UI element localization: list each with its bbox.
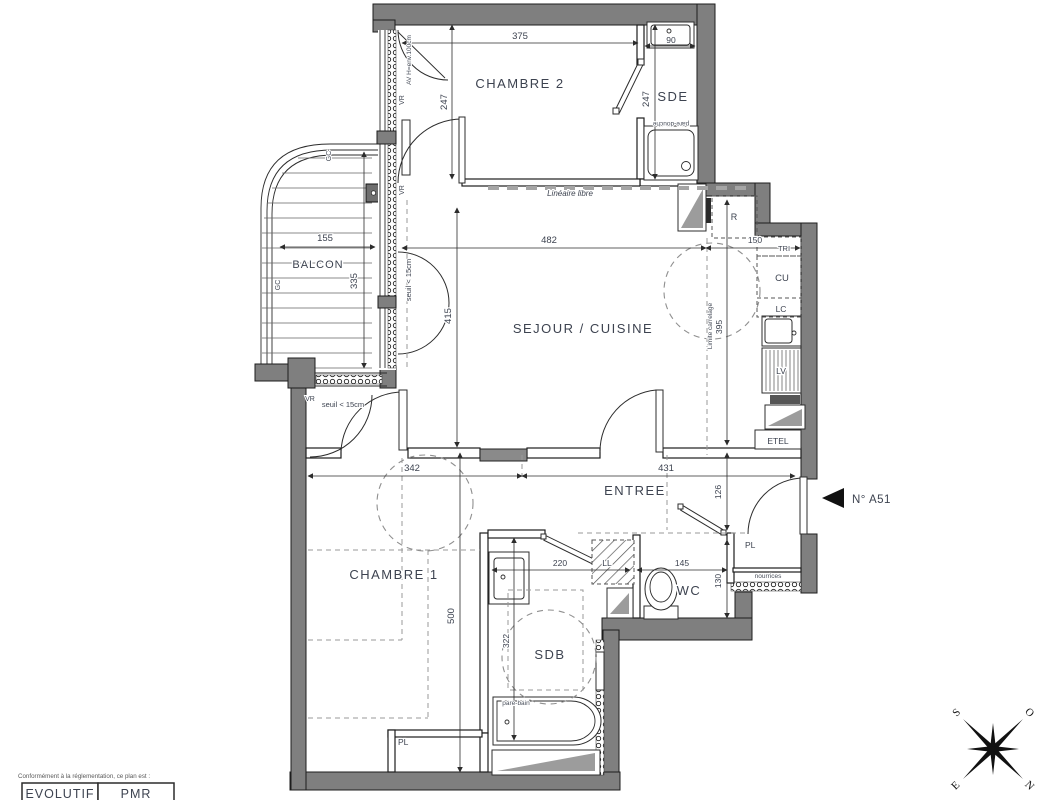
seuil-label: seuil < 15cm: [404, 259, 413, 301]
dim-wc-width: 145: [675, 558, 689, 568]
dim-chambre2-width: 375: [512, 31, 528, 42]
radiator: [480, 449, 527, 461]
wall-wc-south: [602, 618, 752, 640]
dim-wc-depth: 130: [713, 574, 723, 588]
washing-machine: [592, 540, 634, 584]
room-label-entree: ENTREE: [604, 483, 666, 498]
dim-chambre2-depth: 247: [439, 94, 450, 110]
fridge-label: R: [731, 212, 738, 222]
shutter-coil: [316, 375, 382, 384]
dim-chambre1-depth: 500: [446, 608, 457, 624]
room-label-balcon: BALCON: [292, 259, 343, 271]
tri-label: TRI: [778, 244, 790, 253]
page-background: [0, 0, 1053, 800]
worktop: [770, 395, 800, 404]
gc-label: GC: [326, 151, 333, 162]
towel-radiator: [596, 652, 604, 690]
door-leaf: [459, 117, 465, 183]
dim-cuisine-width: 150: [748, 235, 762, 245]
etel-label: ETEL: [767, 436, 789, 446]
dim-sdb-width: 220: [553, 558, 567, 568]
room-label-chambre1: CHAMBRE 1: [349, 567, 438, 582]
dim-sejour-width: 482: [541, 235, 557, 246]
pl-label: PL: [745, 540, 756, 550]
gc-label: GC: [275, 280, 282, 291]
wall-west: [291, 386, 306, 790]
room-label-sdb: SDB: [534, 647, 565, 662]
door-leaf: [656, 390, 663, 452]
dim-sejour-depth: 415: [443, 308, 454, 324]
limite-carrelage-label: Limite carrelage: [707, 302, 714, 349]
room-label-wc: WC: [677, 583, 702, 598]
dim-balcon-width: 155: [317, 233, 333, 244]
footer-note: Conformément à la réglementation, ce pla…: [18, 773, 150, 780]
dim-entree-depth: 126: [713, 485, 723, 499]
dim-sdb-depth: 322: [501, 634, 511, 648]
dim-sde-basin: 90: [666, 35, 676, 45]
vr-label: VR: [305, 396, 315, 403]
pl-label: PL: [398, 737, 409, 747]
evolutif-label: EVOLUTIF: [25, 787, 94, 800]
room-label-sejour: SEJOUR / CUISINE: [513, 321, 653, 336]
av-height-label: AV H=env.100cm: [406, 35, 413, 85]
pmr-label: PMR: [121, 787, 152, 800]
vr-label: VR: [399, 185, 406, 195]
door-leaf: [399, 390, 407, 450]
wall-east: [801, 223, 817, 479]
hob-label: CU: [775, 273, 789, 284]
pare-douche-label: pare-douche: [652, 120, 689, 127]
dishwasher-label: LV: [776, 366, 786, 376]
dim-balcon-depth: 335: [349, 273, 360, 289]
pare-bain-label: pare-bain: [502, 700, 530, 707]
lc-label: LC: [776, 304, 787, 314]
dim-carrelage-depth: 395: [714, 320, 724, 334]
dim-sde-depth: 247: [641, 91, 652, 107]
unit-number: N° A51: [852, 494, 891, 506]
dim-chambre1-width: 342: [404, 463, 420, 474]
wall-east-sde: [697, 4, 715, 196]
ll-label: LL: [602, 558, 612, 568]
shutter-coil: [388, 30, 396, 368]
lineaire-libre-label: Linéaire libre: [547, 189, 593, 198]
floor-plan-drawing: 375 90 247 247 155 335 482 150 415 395 3…: [0, 0, 1053, 800]
seuil-label: seuil < 15cm: [322, 400, 364, 409]
entry-door-leaf: [800, 477, 807, 534]
nourrices-label: nourrices: [755, 573, 782, 580]
floor-plan-page: 375 90 247 247 155 335 482 150 415 395 3…: [0, 0, 1053, 800]
dim-entree-width: 431: [658, 463, 674, 474]
room-label-chambre2: CHAMBRE 2: [475, 76, 564, 91]
room-label-sde: SDE: [657, 89, 688, 104]
vr-label: VR: [399, 95, 406, 105]
